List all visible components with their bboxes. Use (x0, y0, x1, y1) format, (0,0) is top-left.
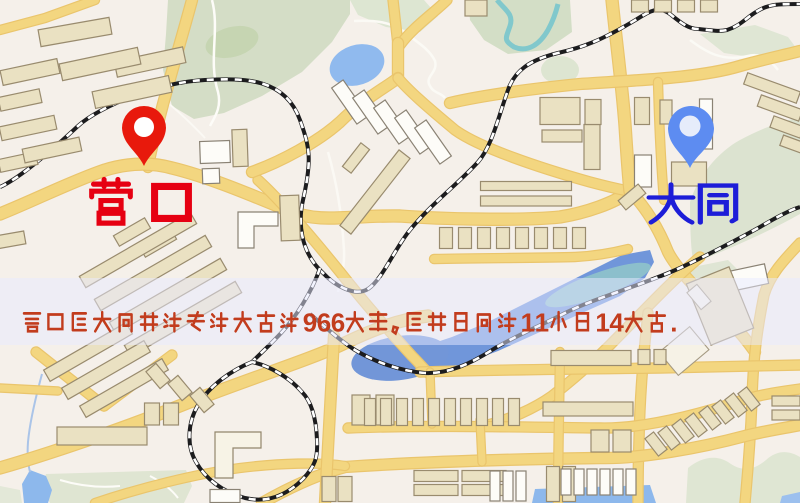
svg-text:1: 1 (521, 308, 535, 338)
svg-text:6: 6 (317, 308, 331, 338)
svg-text:9: 9 (303, 308, 317, 338)
svg-text:6: 6 (331, 308, 345, 338)
svg-text:1: 1 (535, 308, 549, 338)
svg-text:4: 4 (609, 308, 624, 338)
svg-text:.: . (670, 308, 677, 338)
svg-text:1: 1 (595, 308, 609, 338)
